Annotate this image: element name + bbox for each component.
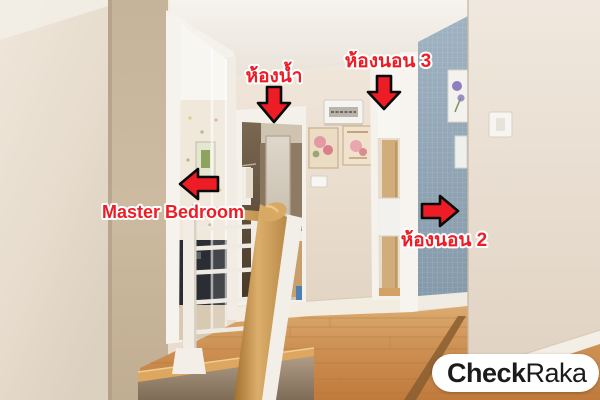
white-wall-panel bbox=[455, 136, 467, 168]
label-master-bedroom: Master Bedroom bbox=[102, 202, 244, 222]
light-switch-back-wall bbox=[311, 176, 327, 187]
right-foreground-wall bbox=[468, 0, 600, 382]
light-switch-rocker bbox=[496, 118, 505, 131]
label-bedroom2: ห้องนอน 2 bbox=[401, 229, 487, 251]
checkraka-logo-text: CheckRaka bbox=[447, 358, 587, 389]
floral-plaque-2 bbox=[343, 126, 372, 165]
towel-2 bbox=[246, 168, 253, 198]
logo-text-bold: Check bbox=[447, 358, 526, 388]
electrical-breaker-panel bbox=[324, 100, 363, 126]
logo-text-regular: Raka bbox=[526, 358, 587, 388]
lavender-picture bbox=[448, 70, 468, 122]
hallway-doorframe-strip bbox=[400, 52, 418, 314]
photo-hallway: ห้องน้ำ ห้องนอน 3 Master Bedroom ห้องนอน… bbox=[0, 0, 600, 400]
checkraka-watermark: CheckRaka bbox=[432, 354, 599, 392]
tan-corner-wall bbox=[108, 0, 168, 400]
picture-content bbox=[201, 150, 210, 168]
annotated-photo-canvas: ห้องน้ำ ห้องนอน 3 Master Bedroom ห้องนอน… bbox=[0, 0, 600, 400]
floral-plaque-1 bbox=[309, 128, 338, 168]
post-left-shade bbox=[194, 214, 197, 368]
railing-post-left-base bbox=[172, 348, 206, 374]
wall-corner-shadow-line bbox=[108, 0, 112, 400]
left-stairwell-wall bbox=[0, 0, 110, 400]
label-bedroom3: ห้องนอน 3 bbox=[345, 50, 431, 72]
